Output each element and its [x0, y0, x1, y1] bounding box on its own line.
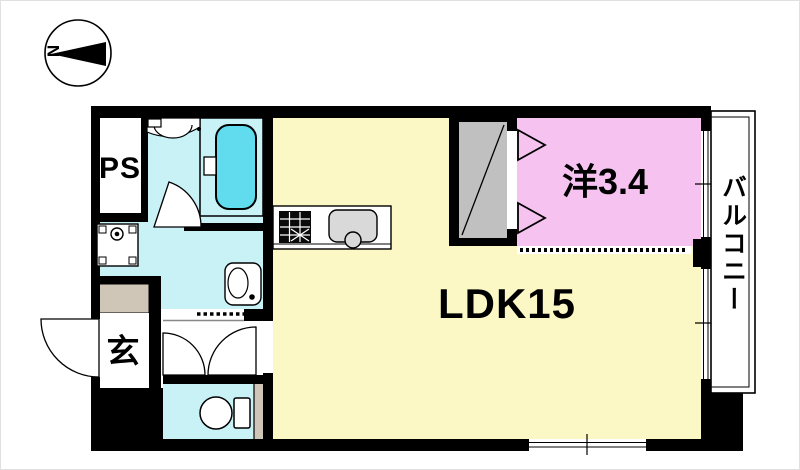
bath-faucet — [204, 157, 216, 175]
toilet-step — [254, 384, 263, 439]
toilet — [200, 397, 250, 429]
washing-machine-pan — [97, 224, 138, 266]
bathtub — [216, 125, 256, 209]
ldk-room-label: LDK15 — [438, 283, 576, 325]
kitchen-sink — [329, 210, 377, 248]
north-label: N — [45, 45, 62, 57]
ldk-door-opening — [263, 321, 273, 373]
stove-icon — [279, 211, 311, 243]
kitchen-counter — [273, 206, 391, 249]
washbasin — [225, 263, 261, 305]
balcony-label: バルコニー — [720, 174, 745, 314]
genkan-label: 玄 — [107, 335, 140, 368]
entrance-door-arc — [41, 319, 99, 377]
western-room-label: 洋3.4 — [562, 164, 648, 200]
ps-room-label: PS — [99, 154, 141, 184]
genkan-step — [98, 284, 149, 313]
floor-plan-drawing — [1, 1, 800, 470]
floor-plan-image: N PS 玄 LDK15 洋3.4 バルコニー — [0, 0, 800, 470]
